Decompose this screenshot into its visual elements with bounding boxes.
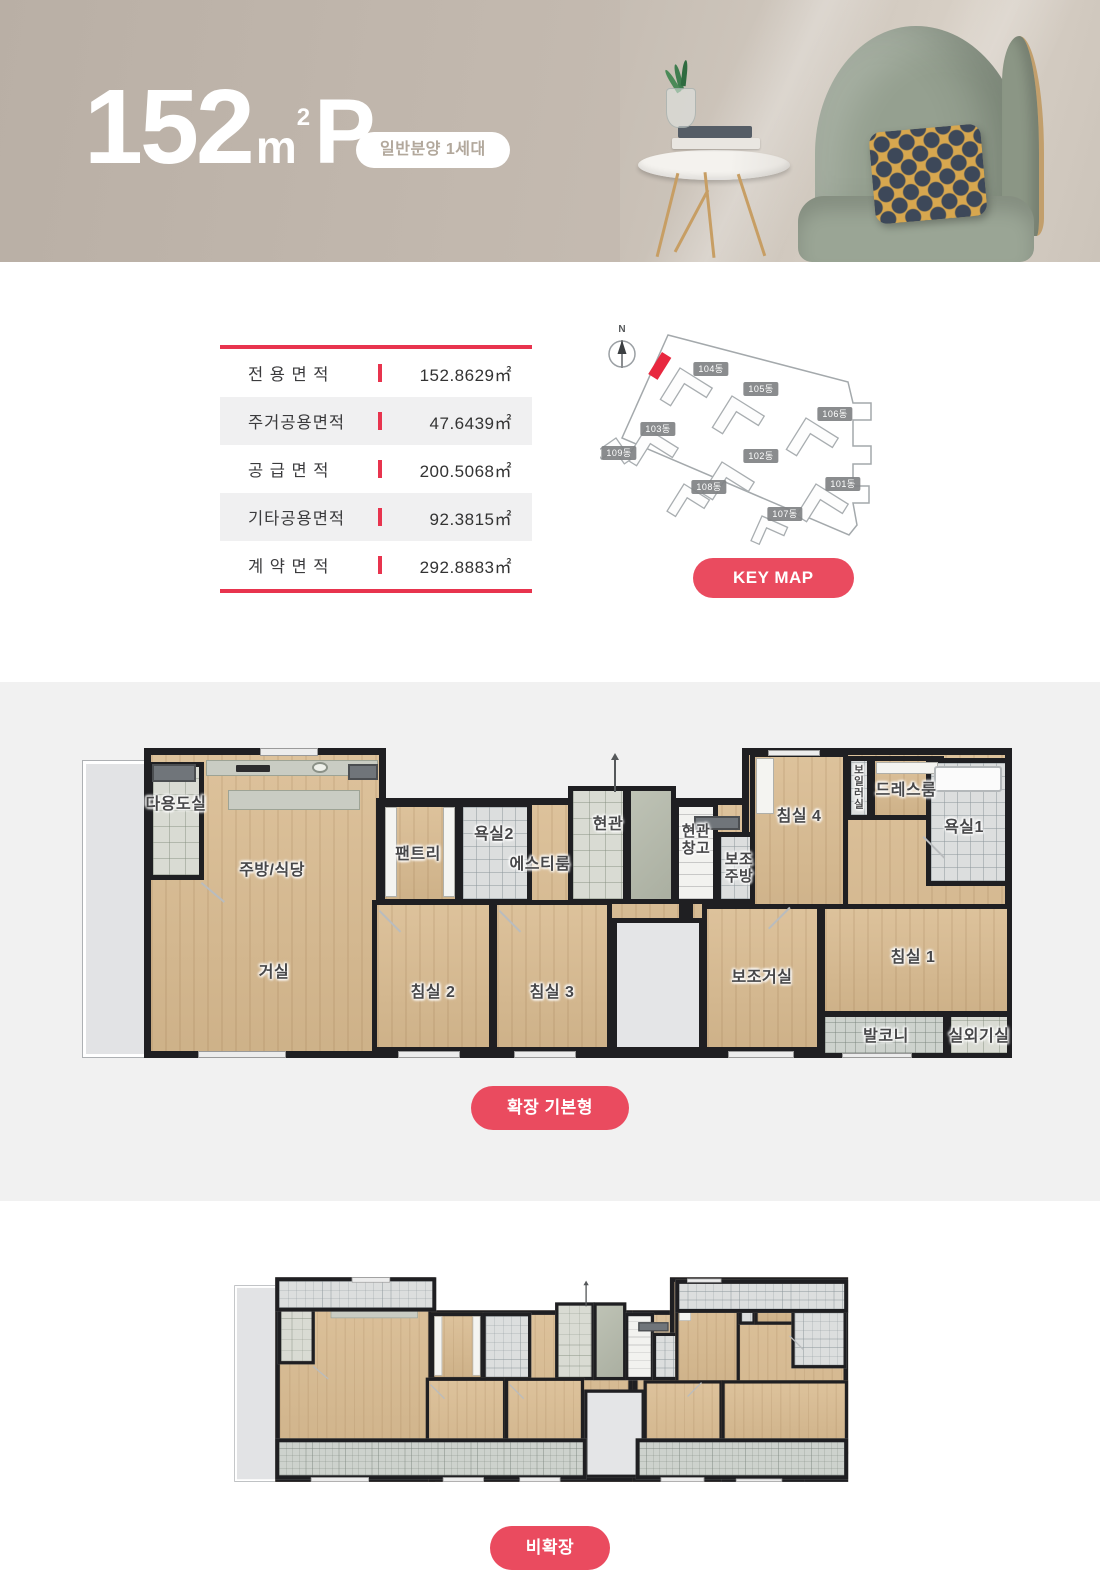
book [672, 138, 760, 149]
area-table: 전 용 면 적 152.8629㎡ 주거공용면적 47.6439㎡ 공 급 면 … [220, 345, 532, 593]
pantry-shelf [443, 807, 455, 897]
red-tick [378, 460, 382, 478]
duct-shaft [348, 764, 378, 780]
room-label-balcony: 발코니 [863, 1022, 909, 1046]
red-tick [378, 412, 382, 430]
room-stair-void [612, 918, 704, 1052]
area-value: 92.3815㎡ [392, 505, 512, 530]
cooktop [236, 765, 270, 772]
building-label-106: 106동 [817, 407, 852, 421]
window [728, 1051, 794, 1058]
building-label-107: 107동 [767, 507, 802, 521]
room-entry-concrete [626, 786, 676, 904]
window [398, 1051, 460, 1058]
room-label-bed4: 침실 4 [777, 802, 822, 826]
plant-vase [666, 88, 696, 128]
red-tick [378, 364, 382, 382]
room-label-utility: 다용도실 [146, 790, 207, 814]
area-value: 292.8883㎡ [392, 553, 512, 578]
bathtub [934, 766, 1002, 792]
area-value: 47.6439㎡ [392, 409, 512, 434]
floor-plan-collapsed: 다용도실 주방/식당 팬트리 욕실2 에스티룸 현관 현관창고 보조주방 침실 … [0, 1201, 1100, 1582]
key-map: N 104동 105동 106동 103동 109동 102동 108동 101… [600, 320, 890, 550]
kitchen-sink [312, 762, 328, 773]
unit-type-title: 152 m 2 P [84, 74, 376, 180]
building-label-102: 102동 [743, 449, 778, 463]
key-map-button[interactable]: KEY MAP [693, 558, 854, 598]
area-label: 기타공용면적 [248, 505, 376, 529]
floor-plan-drawing: 다용도실 주방/식당 팬트리 욕실2 에스티룸 현관 현관창고 보조주방 침실 … [80, 740, 1015, 1062]
supply-badge: 일반분양 1세대 [356, 132, 510, 168]
building-label-101: 101동 [825, 477, 860, 491]
room-label-aux-kitchen: 보조주방 [719, 851, 759, 886]
window [260, 748, 318, 756]
area-row: 계 약 면 적 292.8883㎡ [220, 541, 532, 589]
building-label-103: 103동 [640, 422, 675, 436]
window [198, 1051, 286, 1058]
room-label-boiler: 보일러실 [852, 764, 867, 810]
dressroom-closet [876, 762, 938, 774]
red-tick [378, 508, 382, 526]
duct-shaft [152, 764, 196, 782]
bed4-closet [756, 758, 774, 814]
hero-header: 152 m 2 P 일반분양 1세대 [0, 0, 1100, 262]
side-table [638, 150, 790, 180]
page: 152 m 2 P 일반분양 1세대 전 용 면 적 152.8629㎡ 주거공… [0, 0, 1100, 1582]
window [842, 1053, 912, 1058]
room-label-st-room: 에스티룸 [510, 850, 571, 874]
window [514, 1051, 576, 1058]
area-row: 주거공용면적 47.6439㎡ [220, 397, 532, 445]
area-label: 주거공용면적 [248, 409, 376, 433]
collapsed-button-row: 비확장 [0, 1526, 1100, 1570]
room-label-pantry: 팬트리 [395, 840, 441, 864]
collapsed-plan-button[interactable]: 비확장 [490, 1526, 610, 1570]
area-row: 전 용 면 적 152.8629㎡ [220, 349, 532, 397]
room-label-living: 거실 [259, 958, 289, 982]
entry-direction-arrow [614, 756, 616, 792]
area-value: 152.8629㎡ [392, 361, 512, 386]
room-label-bed2: 침실 2 [411, 978, 456, 1002]
building-label-108: 108동 [691, 480, 726, 494]
building-label-109: 109동 [601, 446, 636, 460]
area-label: 계 약 면 적 [248, 553, 376, 577]
room-label-aux-living: 보조거실 [732, 963, 793, 987]
building-label-104: 104동 [693, 362, 728, 376]
area-label: 전 용 면 적 [248, 361, 376, 385]
area-value: 200.5068㎡ [392, 457, 512, 482]
room-label-bed1: 침실 1 [891, 943, 936, 967]
window [768, 750, 820, 756]
kitchen-island [228, 790, 360, 810]
building-label-105: 105동 [743, 382, 778, 396]
red-tick [378, 556, 382, 574]
room-label-bath2: 욕실2 [474, 820, 514, 844]
hero-photo [620, 0, 1100, 262]
floor-plan-expanded: 다용도실 주방/식당 팬트리 욕실2 에스티룸 현관 현관창고 보조주방 침실 … [0, 682, 1100, 1201]
unit-size-unit: m [256, 124, 297, 170]
dotted-pillow [868, 123, 988, 224]
room-label-dress: 드레스룸 [876, 776, 937, 800]
info-section: 전 용 면 적 152.8629㎡ 주거공용면적 47.6439㎡ 공 급 면 … [0, 262, 1100, 682]
expanded-plan-button[interactable]: 확장 기본형 [471, 1086, 629, 1130]
floor-plan-collapsed-drawing: 다용도실 주방/식당 팬트리 욕실2 에스티룸 현관 현관창고 보조주방 침실 … [233, 1272, 850, 1485]
area-label: 공 급 면 적 [248, 457, 376, 481]
expanded-button-row: 확장 기본형 [0, 1086, 1100, 1130]
floor-plan-collapsed-container: 다용도실 주방/식당 팬트리 욕실2 에스티룸 현관 현관창고 보조주방 침실 … [233, 1272, 863, 1490]
room-label-ac-room: 실외기실 [949, 1022, 1010, 1046]
area-row: 공 급 면 적 200.5068㎡ [220, 445, 532, 493]
room-entrance [568, 786, 628, 904]
unit-size-number: 152 [84, 74, 252, 180]
floor-plan-expanded-container: 다용도실 주방/식당 팬트리 욕실2 에스티룸 현관 현관창고 보조주방 침실 … [80, 740, 1015, 1062]
compass-north-label: N [618, 324, 625, 335]
room-label-bed3: 침실 3 [530, 978, 575, 1002]
room-label-entrance: 현관 [593, 810, 623, 834]
room-label-bath1: 욕실1 [944, 813, 984, 837]
area-row: 기타공용면적 92.3815㎡ [220, 493, 532, 541]
book [678, 126, 752, 138]
room-label-kitchen: 주방/식당 [239, 856, 305, 880]
room-label-entrance-storage: 현관창고 [676, 823, 716, 858]
unit-size-superscript: 2 [297, 106, 310, 130]
